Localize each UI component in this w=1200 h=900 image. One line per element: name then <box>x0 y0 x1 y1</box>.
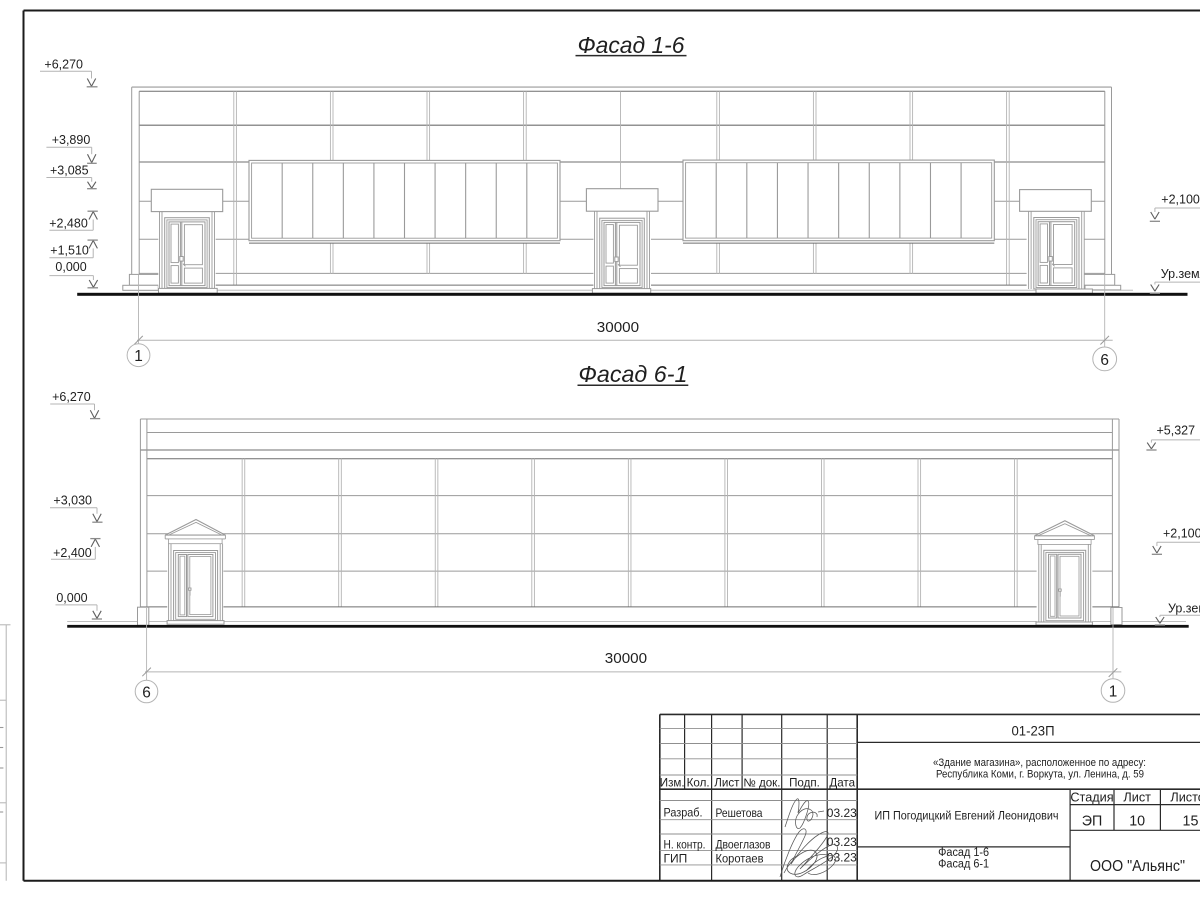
svg-text:03.23: 03.23 <box>827 806 857 820</box>
svg-text:Изм.: Изм. <box>660 777 685 790</box>
svg-text:Фасад 1-6: Фасад 1-6 <box>578 32 686 58</box>
svg-text:Ур.земли: Ур.земли <box>1168 601 1200 615</box>
svg-text:Стадия: Стадия <box>1070 791 1113 805</box>
svg-text:Листов: Листов <box>1170 791 1200 805</box>
svg-text:Республика Коми, г. Воркута, у: Республика Коми, г. Воркута, ул. Ленина,… <box>936 769 1144 781</box>
svg-text:01-23П: 01-23П <box>1012 723 1055 739</box>
svg-text:+2,100: +2,100 <box>1161 193 1200 207</box>
svg-text:+1,510: +1,510 <box>50 244 89 258</box>
svg-text:ГИП: ГИП <box>664 852 688 866</box>
svg-text:30000: 30000 <box>605 650 647 667</box>
svg-text:10: 10 <box>1129 814 1145 830</box>
svg-text:Лист: Лист <box>714 777 740 790</box>
svg-text:Разраб.: Разраб. <box>664 806 703 820</box>
svg-text:Лист: Лист <box>1123 791 1151 805</box>
svg-text:Коротаев: Коротаев <box>716 852 764 866</box>
svg-text:Фасад 6-1: Фасад 6-1 <box>578 361 687 387</box>
svg-text:+3,030: +3,030 <box>53 494 92 508</box>
svg-text:+2,400: +2,400 <box>53 546 92 560</box>
svg-text:6: 6 <box>142 684 151 701</box>
svg-text:№ док.: № док. <box>743 777 780 790</box>
svg-text:Ур.земли: Ур.земли <box>1161 267 1200 281</box>
svg-text:0,000: 0,000 <box>55 260 86 274</box>
svg-text:Фасад 1-6: Фасад 1-6 <box>938 847 989 859</box>
svg-text:+3,890: +3,890 <box>52 133 91 147</box>
svg-text:«Здание магазина», расположенн: «Здание магазина», расположенное по адре… <box>933 757 1146 769</box>
svg-text:Фасад 6-1: Фасад 6-1 <box>938 858 989 870</box>
svg-text:+2,480: +2,480 <box>49 216 88 230</box>
svg-text:+6,270: +6,270 <box>52 390 91 404</box>
svg-text:+2,100: +2,100 <box>1163 526 1200 540</box>
svg-text:30000: 30000 <box>597 319 639 336</box>
svg-text:Подп.: Подп. <box>789 777 820 790</box>
svg-text:15: 15 <box>1183 814 1199 830</box>
svg-text:ИП Погодицкий Евгений Леонидов: ИП Погодицкий Евгений Леонидович <box>875 809 1059 823</box>
svg-text:6: 6 <box>1100 352 1109 369</box>
svg-text:1: 1 <box>134 348 143 365</box>
svg-text:Дата: Дата <box>829 777 855 790</box>
svg-text:+5,327: +5,327 <box>1157 424 1196 438</box>
svg-text:0,000: 0,000 <box>56 591 87 605</box>
svg-text:Н. контр.: Н. контр. <box>664 837 706 851</box>
svg-text:03.23: 03.23 <box>827 835 857 849</box>
svg-text:+6,270: +6,270 <box>44 57 83 71</box>
svg-text:ЭП: ЭП <box>1082 814 1103 830</box>
svg-text:+3,085: +3,085 <box>50 163 89 177</box>
svg-text:1: 1 <box>1109 683 1118 700</box>
svg-text:Решетова: Решетова <box>716 806 763 820</box>
svg-text:Двоеглазов: Двоеглазов <box>716 837 771 851</box>
svg-text:ООО "Альянс": ООО "Альянс" <box>1090 858 1185 875</box>
svg-text:Кол.: Кол. <box>687 777 710 790</box>
